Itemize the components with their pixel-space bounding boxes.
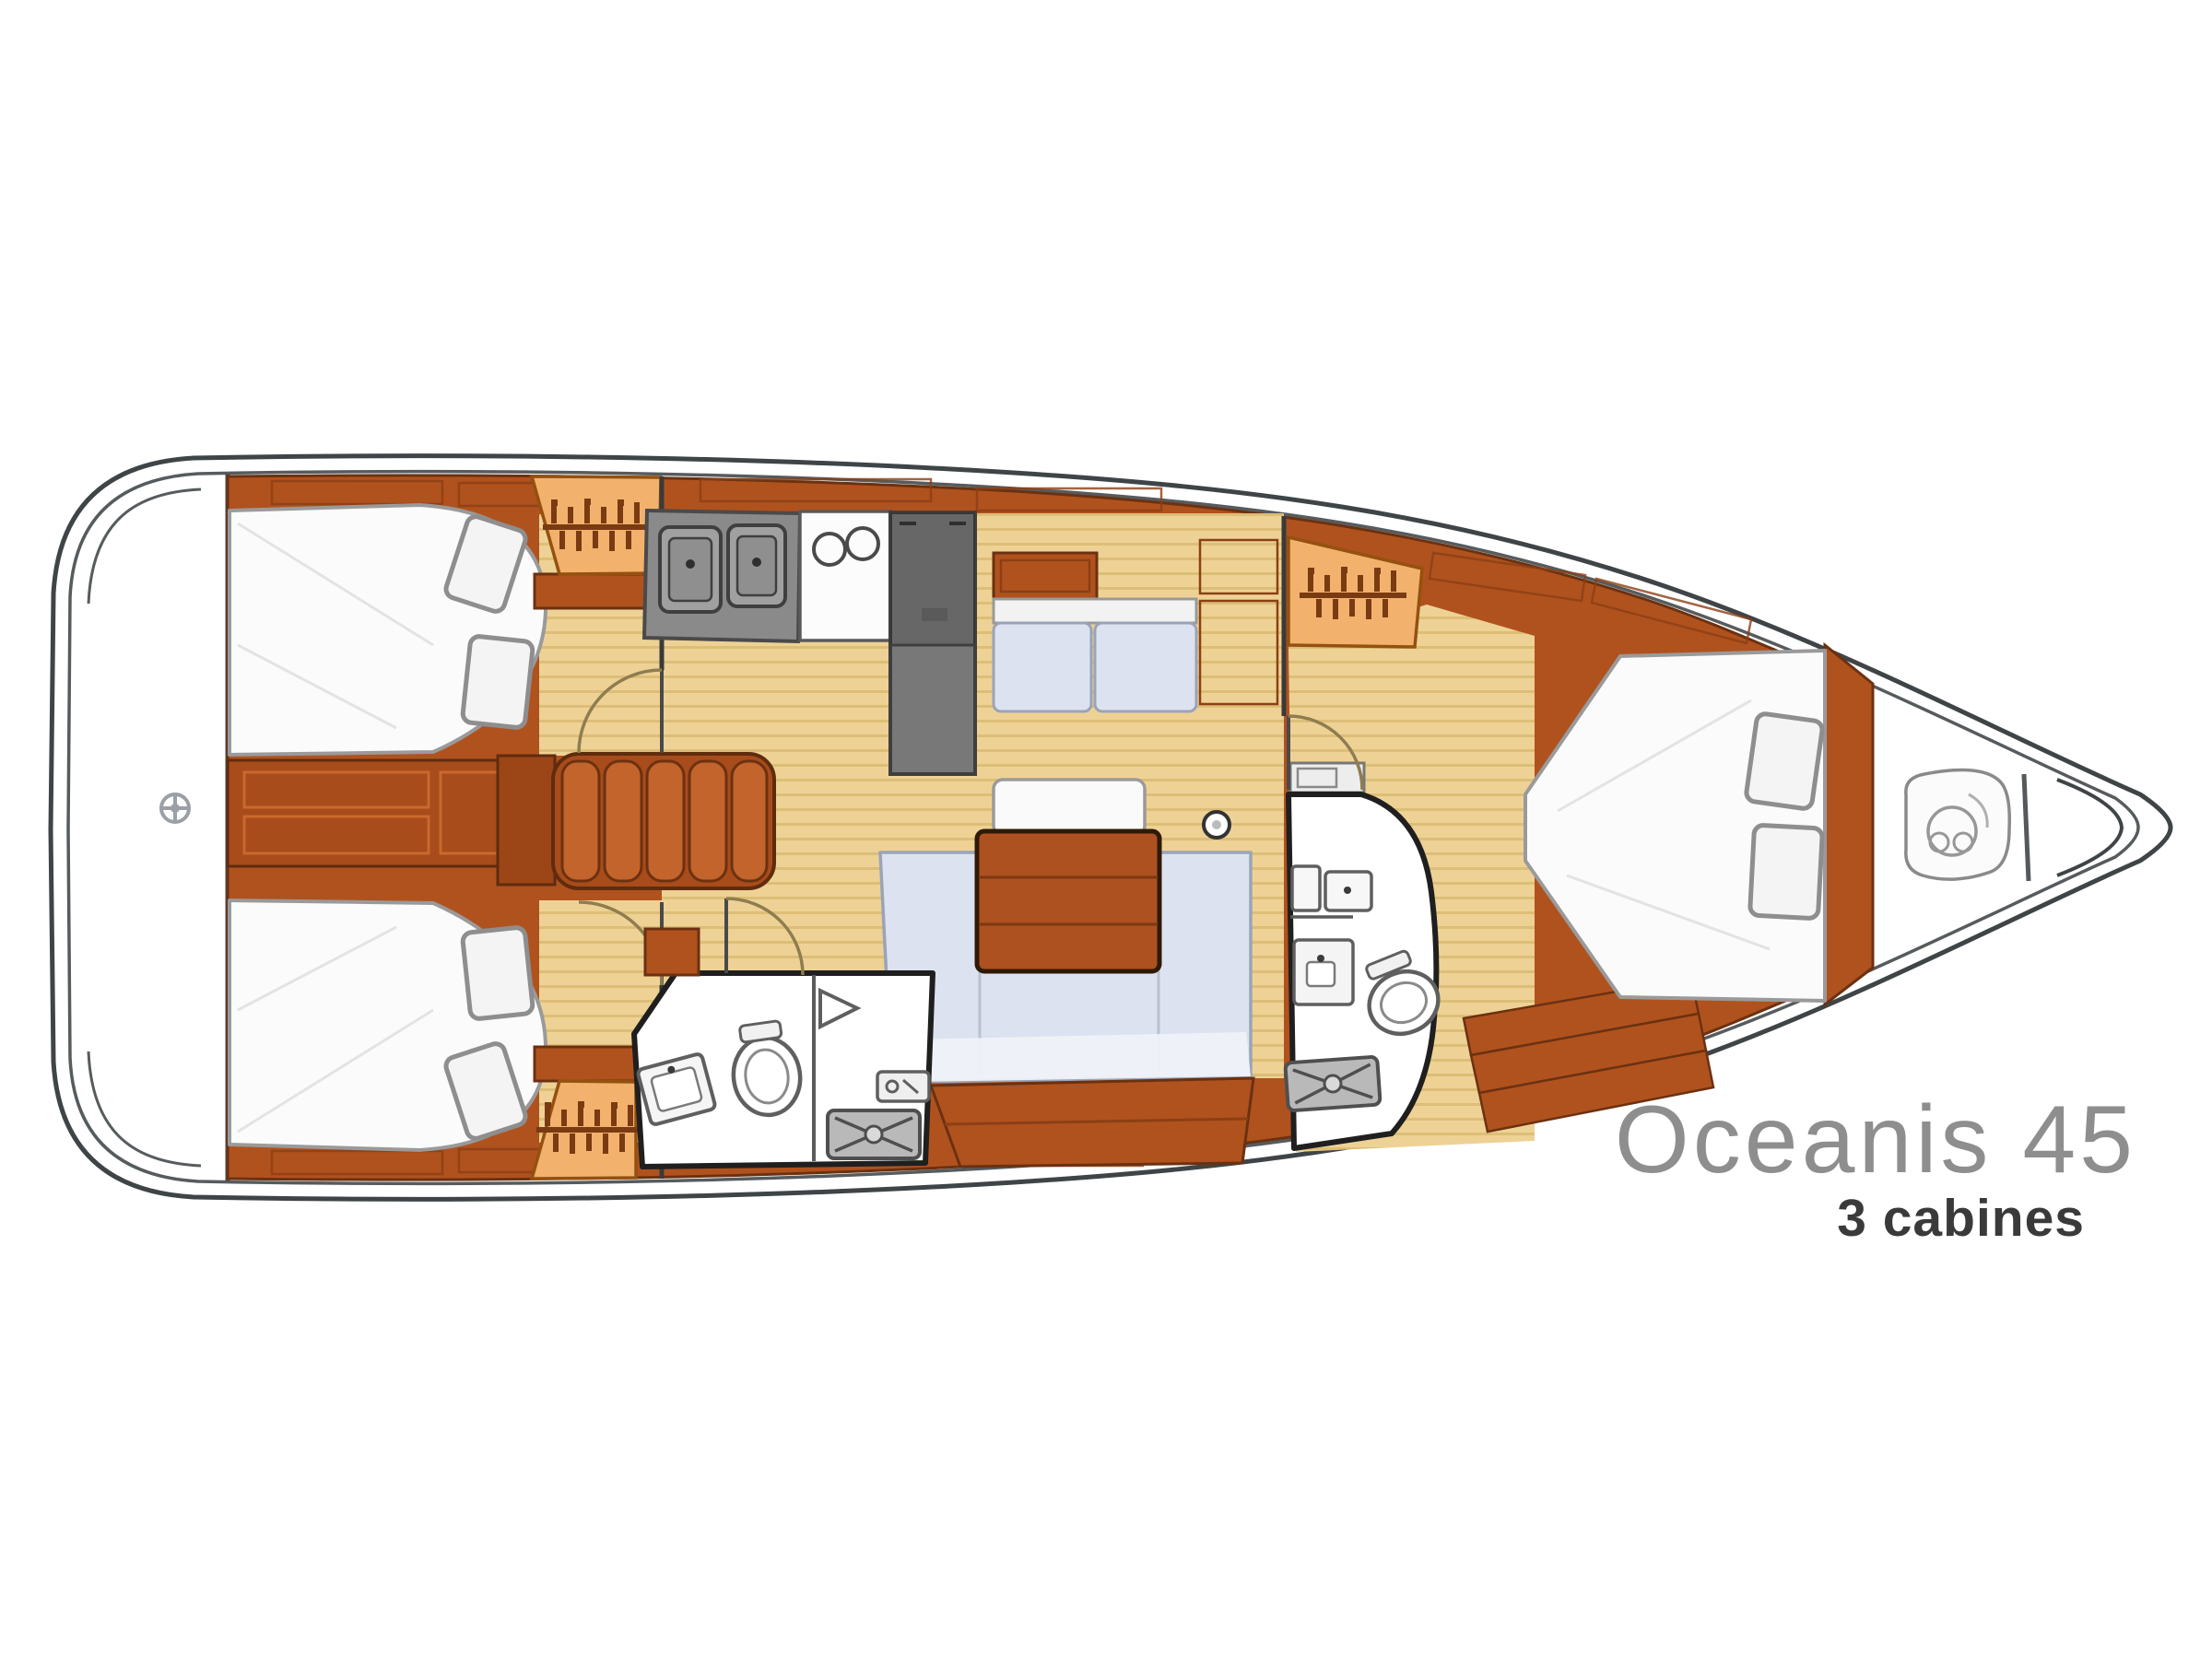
step-treads — [562, 761, 767, 881]
shower-grate-icon — [828, 1110, 920, 1158]
shower-mixer-icon — [877, 1072, 929, 1101]
fridge-icon — [890, 512, 975, 774]
locker-cabinet — [535, 574, 659, 608]
helm-wheel-icon — [161, 794, 189, 822]
table-backrest — [994, 780, 1145, 835]
settee-cushion — [1095, 623, 1196, 711]
model-title: Oceanis 45 — [1615, 1086, 2136, 1193]
shower-grate-icon — [1285, 1057, 1380, 1111]
sink-icon — [1292, 866, 1371, 910]
sink-icon — [728, 525, 785, 606]
stove-top — [800, 511, 890, 640]
pillow — [1749, 825, 1822, 919]
windlass-icon — [1906, 770, 2009, 880]
locker-cabinet — [535, 1047, 636, 1081]
sink-icon — [660, 527, 721, 612]
companionway-steps — [553, 754, 774, 888]
mast-post-icon — [1204, 812, 1230, 838]
engine-compartment — [228, 756, 555, 885]
sofa-front-edge — [908, 1032, 1251, 1082]
pillow — [1746, 712, 1824, 809]
vanity-cabinet — [645, 929, 699, 975]
anchor-locker — [1906, 770, 2009, 880]
layout-subtitle: 3 cabines — [1837, 1189, 2085, 1248]
berth-frame — [1825, 645, 1873, 1004]
companionway-side-box — [498, 756, 555, 885]
vanity-unit — [1294, 940, 1353, 1004]
settee-backrest — [994, 599, 1196, 623]
saloon-table — [977, 831, 1159, 971]
settee-cushion — [994, 623, 1091, 711]
floorplan-page: Oceanis 45 3 cabines — [0, 0, 2212, 1656]
pillow — [462, 927, 533, 1020]
pillow — [462, 636, 533, 729]
boat-floorplan: Oceanis 45 3 cabines — [0, 0, 2212, 1656]
